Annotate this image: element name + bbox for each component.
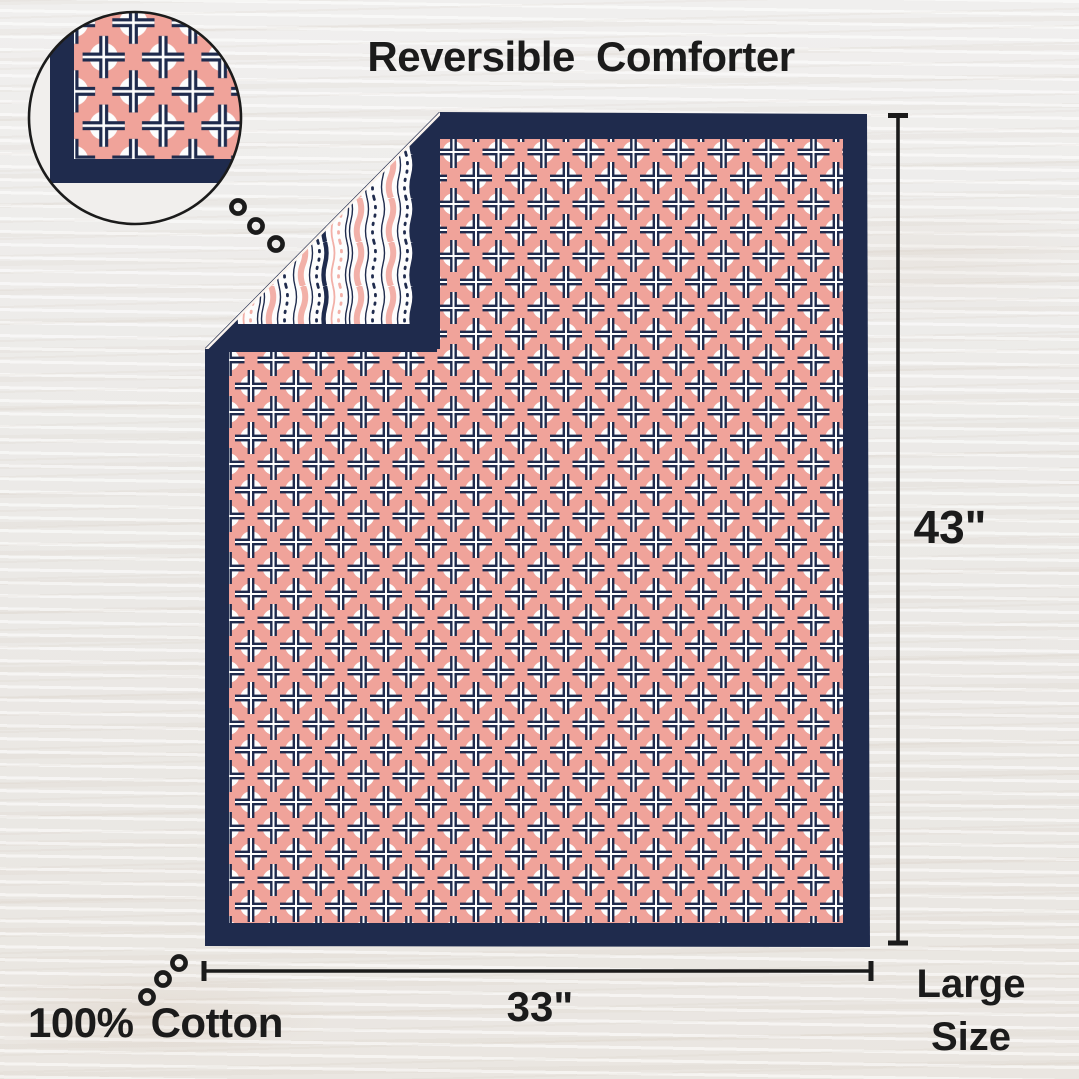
width-dimension-label: 33" [507, 986, 574, 1028]
size-label-line1: Large [917, 958, 1026, 1011]
size-label: Large Size [917, 958, 1026, 1064]
magnified-border-bottom [50, 159, 232, 183]
height-dimension-line [888, 116, 908, 944]
magnified-border-left [50, 0, 74, 183]
comforter [200, 108, 870, 947]
height-dimension-label: 43" [914, 504, 987, 550]
fold-border-vertical [413, 110, 440, 349]
material-label: 100% Cotton [28, 1002, 283, 1044]
width-dimension-line [204, 961, 871, 981]
stitch-dots-bottom-icon [140, 956, 185, 1003]
page-title: Reversible Comforter [367, 36, 794, 78]
magnified-front-pattern [74, 0, 254, 160]
corner-detail-magnifier [29, 0, 254, 224]
stitch-dots-top-icon [231, 200, 282, 250]
fold-border-horizontal [200, 324, 440, 349]
size-label-line2: Size [917, 1011, 1026, 1064]
product-infographic: Reversible Comforter 43" 33" Large Size … [0, 0, 1079, 1079]
